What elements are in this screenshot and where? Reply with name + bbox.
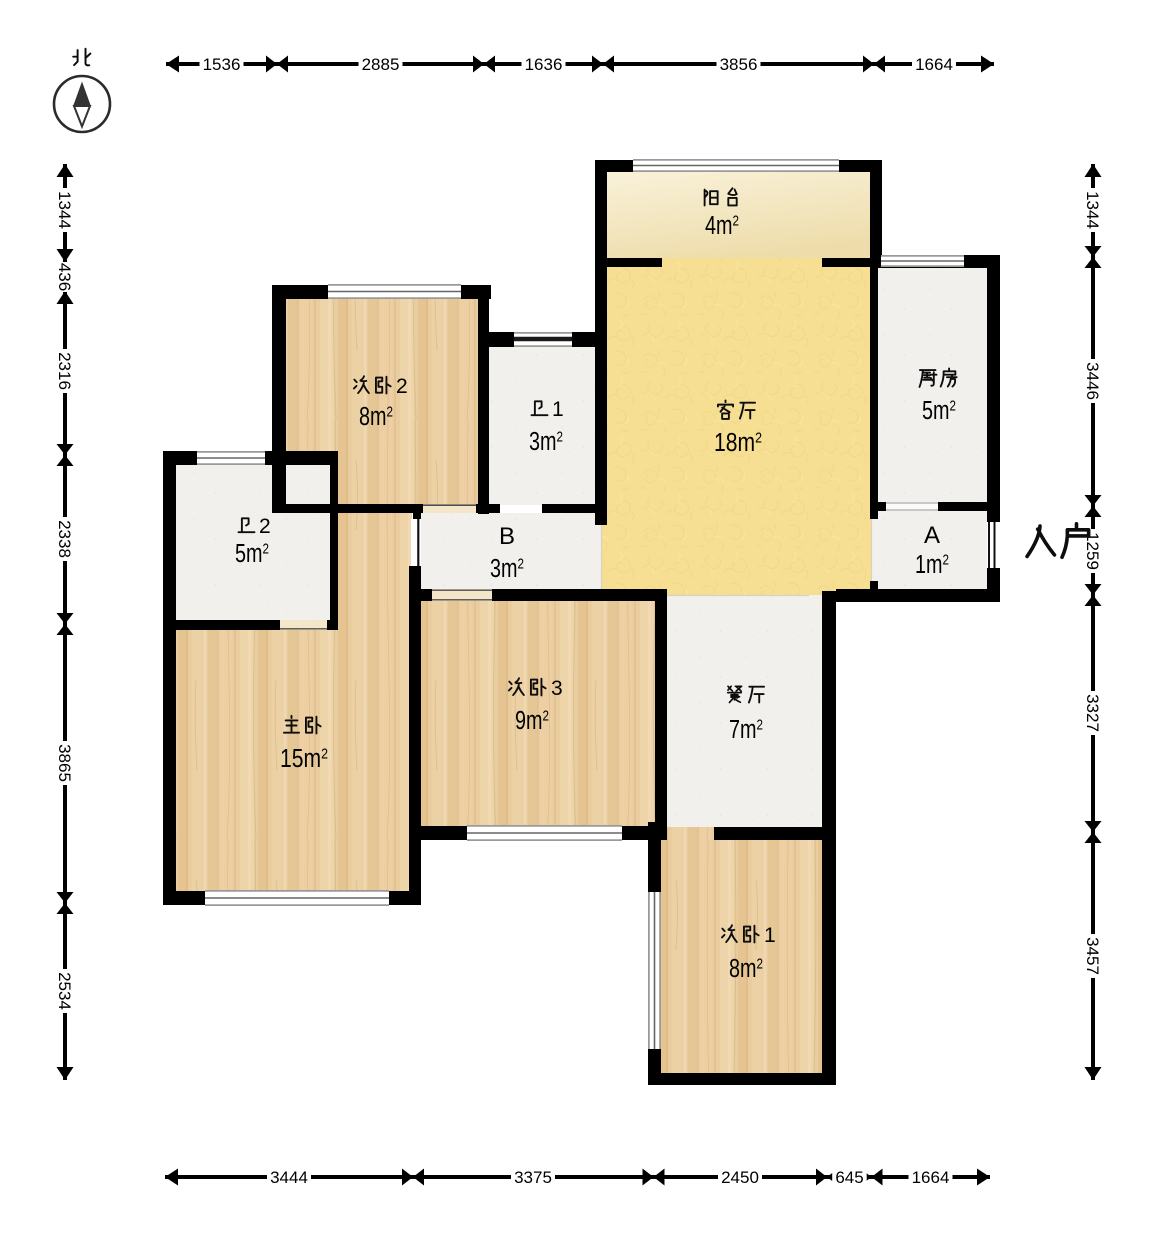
svg-text:645: 645 bbox=[835, 1168, 863, 1187]
svg-text:1344: 1344 bbox=[1083, 191, 1102, 229]
svg-text:A: A bbox=[924, 522, 940, 549]
svg-text:2: 2 bbox=[259, 515, 271, 538]
svg-text:2534: 2534 bbox=[55, 972, 74, 1010]
svg-text:1: 1 bbox=[764, 924, 776, 947]
svg-text:B: B bbox=[499, 523, 515, 550]
svg-text:1344: 1344 bbox=[55, 191, 74, 229]
svg-text:2450: 2450 bbox=[721, 1168, 759, 1187]
svg-text:3327: 3327 bbox=[1083, 694, 1102, 732]
svg-text:3865: 3865 bbox=[55, 744, 74, 782]
svg-text:3446: 3446 bbox=[1083, 362, 1102, 400]
svg-text:3375: 3375 bbox=[514, 1168, 552, 1187]
svg-text:2316: 2316 bbox=[55, 352, 74, 390]
svg-text:18m2: 18m2 bbox=[714, 429, 762, 457]
svg-text:3: 3 bbox=[551, 677, 563, 700]
svg-text:1259: 1259 bbox=[1083, 532, 1102, 570]
svg-text:2338: 2338 bbox=[55, 520, 74, 558]
svg-text:2: 2 bbox=[396, 375, 408, 398]
svg-text:1536: 1536 bbox=[203, 55, 241, 74]
svg-text:3856: 3856 bbox=[720, 55, 758, 74]
svg-text:15m2: 15m2 bbox=[280, 745, 328, 773]
svg-text:1664: 1664 bbox=[915, 55, 953, 74]
svg-text:1664: 1664 bbox=[912, 1168, 950, 1187]
svg-text:436: 436 bbox=[55, 263, 74, 291]
svg-text:1: 1 bbox=[552, 398, 564, 421]
svg-text:3444: 3444 bbox=[270, 1168, 308, 1187]
svg-text:3457: 3457 bbox=[1083, 937, 1102, 975]
svg-text:1636: 1636 bbox=[525, 55, 563, 74]
svg-text:2885: 2885 bbox=[362, 55, 400, 74]
